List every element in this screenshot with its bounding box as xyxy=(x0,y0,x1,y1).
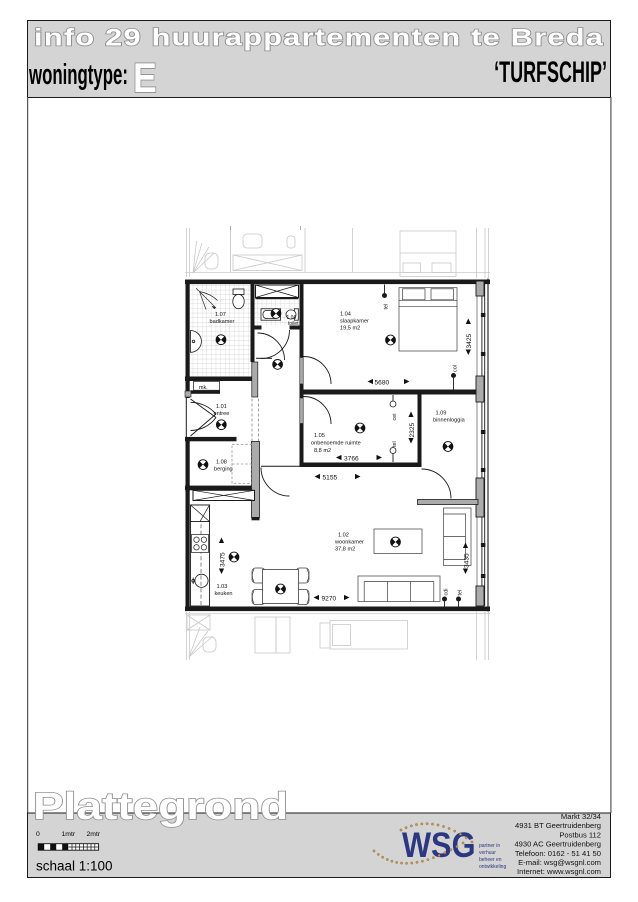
svg-text:berging: berging xyxy=(214,467,233,473)
svg-text:1.01: 1.01 xyxy=(216,404,227,410)
svg-text:1.04: 1.04 xyxy=(340,312,351,318)
svg-text:Postbus 112: Postbus 112 xyxy=(559,830,601,839)
svg-text:5155: 5155 xyxy=(323,474,338,481)
svg-text:Telefoon: 0162 - 51 41 50: Telefoon: 0162 - 51 41 50 xyxy=(515,849,601,858)
svg-text:E-mail: wsg@wsgnl.com: E-mail: wsg@wsgnl.com xyxy=(518,858,601,867)
svg-text:keuken: keuken xyxy=(215,591,233,597)
svg-text:entree: entree xyxy=(214,411,230,417)
svg-text:3425: 3425 xyxy=(466,333,473,348)
svg-text:beheer en: beheer en xyxy=(479,857,502,863)
svg-text:slaapkamer: slaapkamer xyxy=(340,319,369,325)
svg-text:woningtype:: woningtype: xyxy=(28,58,128,90)
svg-text:0: 0 xyxy=(36,831,40,838)
svg-text:schaal 1:100: schaal 1:100 xyxy=(36,859,113,874)
svg-text:tel: tel xyxy=(458,590,464,596)
svg-text:Internet: www.wsgnl.com: Internet: www.wsgnl.com xyxy=(517,867,601,876)
svg-text:2mtr: 2mtr xyxy=(87,831,101,838)
svg-text:1.09: 1.09 xyxy=(436,411,447,417)
svg-text:37,8 m2: 37,8 m2 xyxy=(335,547,355,553)
svg-text:4930 AC Geertruidenberg: 4930 AC Geertruidenberg xyxy=(514,840,601,849)
svg-text:3435: 3435 xyxy=(463,553,470,568)
svg-text:info 29 huurappartementen te B: info 29 huurappartementen te Breda xyxy=(34,23,604,51)
svg-text:3475: 3475 xyxy=(219,552,226,567)
svg-text:19,5 m2: 19,5 m2 xyxy=(340,326,360,332)
svg-text:ontwikkeling: ontwikkeling xyxy=(479,864,506,870)
svg-text:1.02: 1.02 xyxy=(338,533,349,539)
svg-text:9270: 9270 xyxy=(322,595,337,602)
svg-text:partner in: partner in xyxy=(479,843,500,849)
svg-text:onbenoemde ruimte: onbenoemde ruimte xyxy=(311,441,361,447)
svg-text:verhuur: verhuur xyxy=(479,850,496,856)
svg-text:3766: 3766 xyxy=(344,455,359,462)
svg-text:WSG: WSG xyxy=(402,825,476,864)
svg-text:‘TURFSCHIP’: ‘TURFSCHIP’ xyxy=(494,57,607,90)
svg-text:1.08: 1.08 xyxy=(216,460,227,466)
svg-text:1.03: 1.03 xyxy=(217,584,228,590)
svg-text:cdi: cdi xyxy=(444,589,450,596)
svg-text:1.07: 1.07 xyxy=(215,312,226,318)
svg-text:E: E xyxy=(133,55,157,101)
svg-text:binnenloggia: binnenloggia xyxy=(433,418,466,424)
svg-text:tel: tel xyxy=(392,441,398,447)
svg-text:cei: cei xyxy=(392,414,398,421)
svg-text:4931 BT Geertruidenberg: 4931 BT Geertruidenberg xyxy=(515,821,601,830)
svg-text:1.05: 1.05 xyxy=(314,433,325,439)
svg-text:Plattegrond: Plattegrond xyxy=(33,785,288,827)
svg-text:2325: 2325 xyxy=(409,422,416,437)
svg-text:badkamer: badkamer xyxy=(210,319,235,325)
svg-text:1mtr: 1mtr xyxy=(62,831,76,838)
svg-text:Markt 32/34: Markt 32/34 xyxy=(561,812,601,821)
svg-text:mk.: mk. xyxy=(199,385,208,391)
svg-text:5680: 5680 xyxy=(375,379,390,386)
svg-text:8,8 m2: 8,8 m2 xyxy=(314,448,331,454)
svg-text:tel: tel xyxy=(384,304,390,310)
svg-text:woonkamer: woonkamer xyxy=(334,540,364,546)
svg-text:col: col xyxy=(453,365,459,372)
svg-text:toilet: toilet xyxy=(288,321,299,327)
